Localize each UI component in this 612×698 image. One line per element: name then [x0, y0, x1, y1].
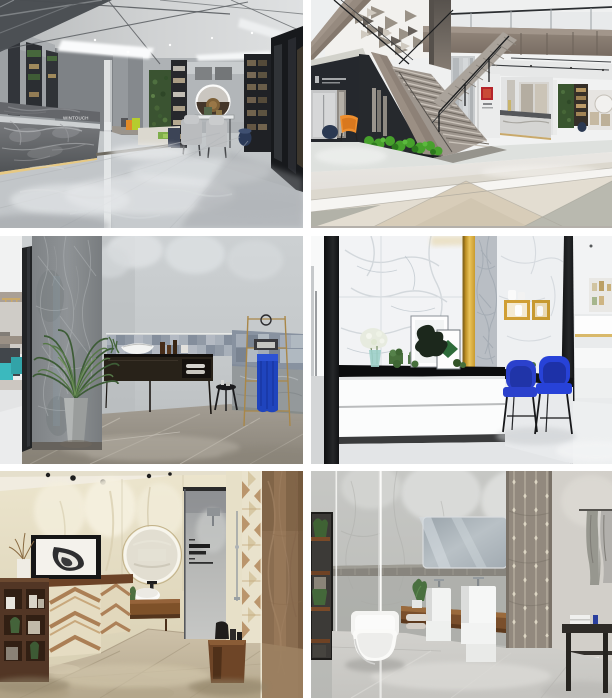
svg-text:WINTOUCH: WINTOUCH [63, 116, 89, 121]
